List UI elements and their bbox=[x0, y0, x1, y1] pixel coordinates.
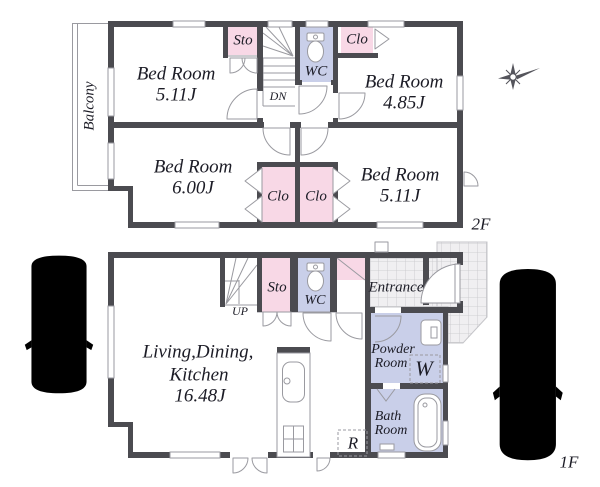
floor1-label: 1F bbox=[560, 454, 579, 471]
bedroom-tr-size: 4.85J bbox=[383, 94, 425, 113]
washer-label: W bbox=[415, 359, 433, 380]
floor-plan: Balcony Bed Room 5.11J Sto WC Clo DN Bed… bbox=[0, 0, 600, 487]
bath-room-label-line1: Bath bbox=[375, 410, 401, 424]
bedroom-bl-size: 6.00J bbox=[172, 179, 214, 198]
closet-top-label: Clo bbox=[346, 33, 368, 48]
stairs-down-label: DN bbox=[270, 90, 287, 102]
balcony-label: Balcony bbox=[83, 81, 98, 130]
stairs-up-label: UP bbox=[232, 305, 248, 317]
kitchen-counter bbox=[277, 353, 310, 457]
closet-left-label: Clo bbox=[267, 190, 289, 205]
wc-label-2f: WC bbox=[305, 65, 328, 80]
car-icon-left bbox=[25, 256, 93, 394]
bedroom-tr-name: Bed Room bbox=[365, 73, 444, 92]
kitchen-faucet-icon bbox=[284, 378, 290, 384]
ldk-name-line1: Living,Dining, bbox=[143, 343, 254, 362]
toilet-icon-2f bbox=[307, 33, 324, 62]
floor2-label: 2F bbox=[472, 216, 491, 233]
toilet-icon-1f bbox=[307, 263, 324, 291]
bath-faucet-icon bbox=[380, 444, 394, 450]
floor-plan-drawing bbox=[0, 0, 600, 487]
compass-icon bbox=[498, 63, 540, 90]
ldk-name-line2: Kitchen bbox=[169, 366, 228, 385]
bedroom-tl-name: Bed Room bbox=[137, 65, 216, 84]
storage-label-2f: Sto bbox=[233, 34, 252, 49]
bedroom-tl-size: 5.11J bbox=[156, 86, 196, 105]
powder-room-label-line2: Room bbox=[375, 357, 408, 371]
closet-right-label: Clo bbox=[305, 190, 327, 205]
wc-label-1f: WC bbox=[305, 294, 326, 308]
ldk-size: 16.48J bbox=[174, 387, 225, 406]
bath-room-label-line2: Room bbox=[375, 424, 408, 438]
entrance-label: Entrance bbox=[369, 281, 424, 296]
fridge-label: R bbox=[348, 435, 358, 452]
car-icon-right bbox=[493, 269, 563, 460]
washbasin-icon bbox=[421, 320, 441, 345]
bedroom-br-name: Bed Room bbox=[361, 166, 440, 185]
powder-room-label-line1: Powder bbox=[371, 343, 415, 357]
bedroom-br-size: 5.11J bbox=[380, 187, 420, 206]
bedroom-bl-name: Bed Room bbox=[154, 158, 233, 177]
floor1-plan bbox=[25, 242, 563, 473]
storage-label-1f: Sto bbox=[267, 281, 286, 296]
